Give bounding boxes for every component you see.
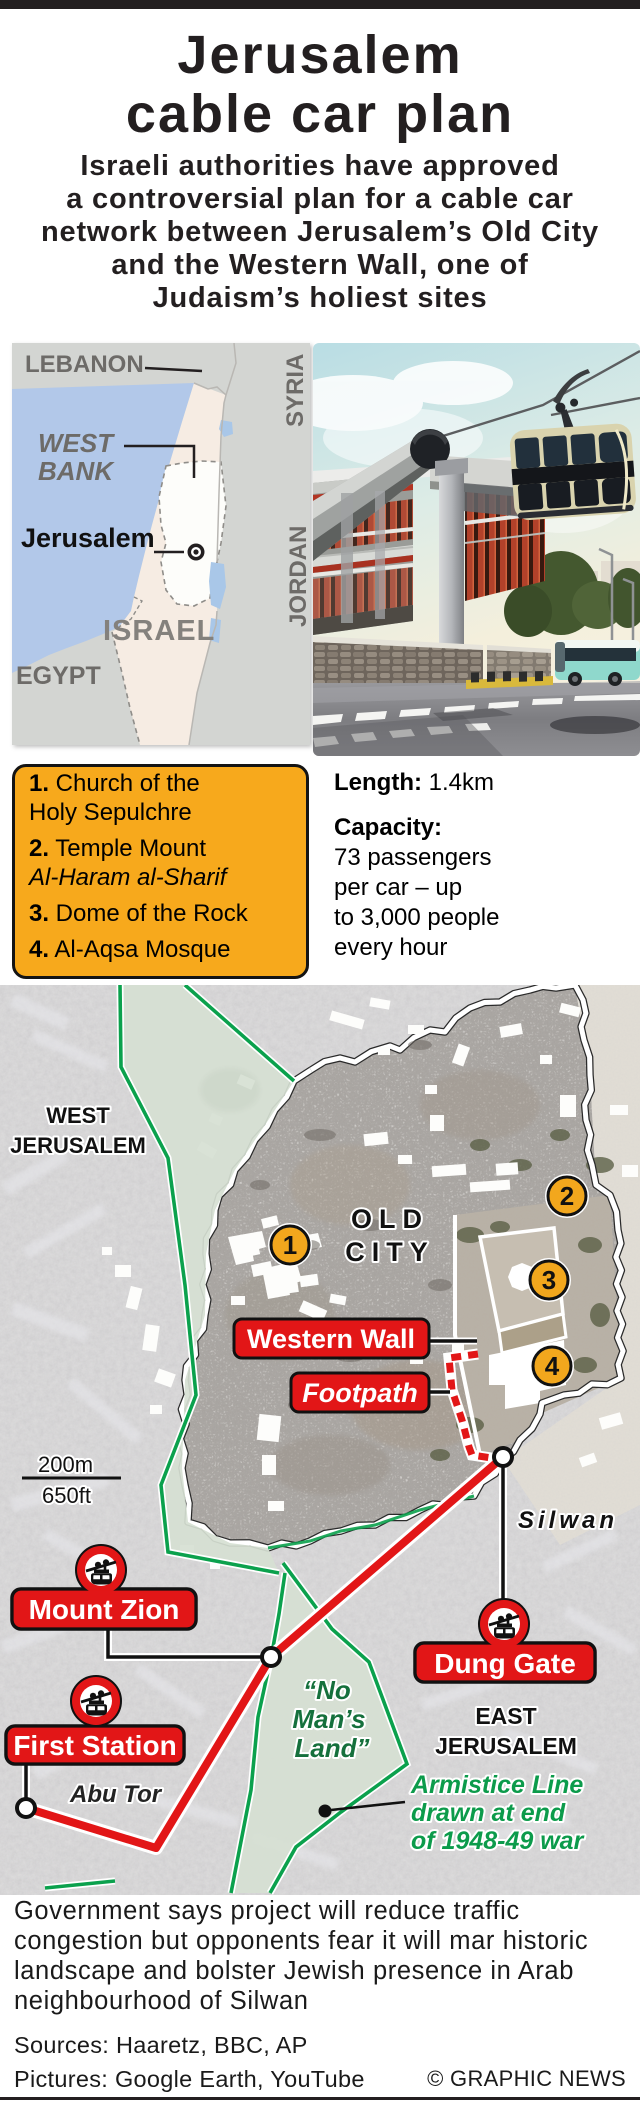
svg-text:1: 1 <box>283 1230 297 1260</box>
svg-text:JORDAN: JORDAN <box>285 526 310 627</box>
svg-text:JERUSALEM: JERUSALEM <box>10 1133 146 1158</box>
svg-text:EAST: EAST <box>475 1703 536 1729</box>
svg-text:Man’s: Man’s <box>292 1704 365 1734</box>
svg-text:of 1948-49 war: of 1948-49 war <box>411 1827 585 1855</box>
svg-text:Silwan: Silwan <box>518 1507 618 1534</box>
svg-text:JERUSALEM: JERUSALEM <box>435 1733 577 1759</box>
svg-text:SYRIA: SYRIA <box>282 354 309 427</box>
svg-text:OLD: OLD <box>351 1204 429 1234</box>
svg-text:BANK: BANK <box>38 456 115 486</box>
svg-text:LEBANON: LEBANON <box>25 351 144 378</box>
svg-text:3: 3 <box>542 1265 556 1295</box>
svg-text:“No: “No <box>303 1675 351 1705</box>
svg-text:650ft: 650ft <box>42 1483 91 1508</box>
svg-text:WEST: WEST <box>46 1103 110 1128</box>
svg-text:Land”: Land” <box>294 1733 369 1763</box>
svg-text:WEST: WEST <box>38 428 115 458</box>
svg-text:Footpath: Footpath <box>302 1378 417 1408</box>
svg-text:drawn at end: drawn at end <box>411 1799 566 1827</box>
svg-text:200m: 200m <box>38 1452 93 1477</box>
svg-text:Jerusalem: Jerusalem <box>21 523 155 553</box>
svg-text:4: 4 <box>545 1351 560 1381</box>
svg-text:EGYPT: EGYPT <box>16 662 101 690</box>
svg-text:ISRAEL: ISRAEL <box>103 615 215 647</box>
svg-text:Mount Zion: Mount Zion <box>29 1594 180 1625</box>
svg-text:Abu Tor: Abu Tor <box>69 1781 163 1808</box>
svg-text:Armistice Line: Armistice Line <box>410 1771 583 1799</box>
svg-text:Western Wall: Western Wall <box>247 1324 415 1354</box>
svg-text:First Station: First Station <box>13 1730 176 1761</box>
svg-text:CITY: CITY <box>345 1237 435 1267</box>
svg-text:2: 2 <box>560 1181 574 1211</box>
svg-text:Dung Gate: Dung Gate <box>434 1648 576 1679</box>
